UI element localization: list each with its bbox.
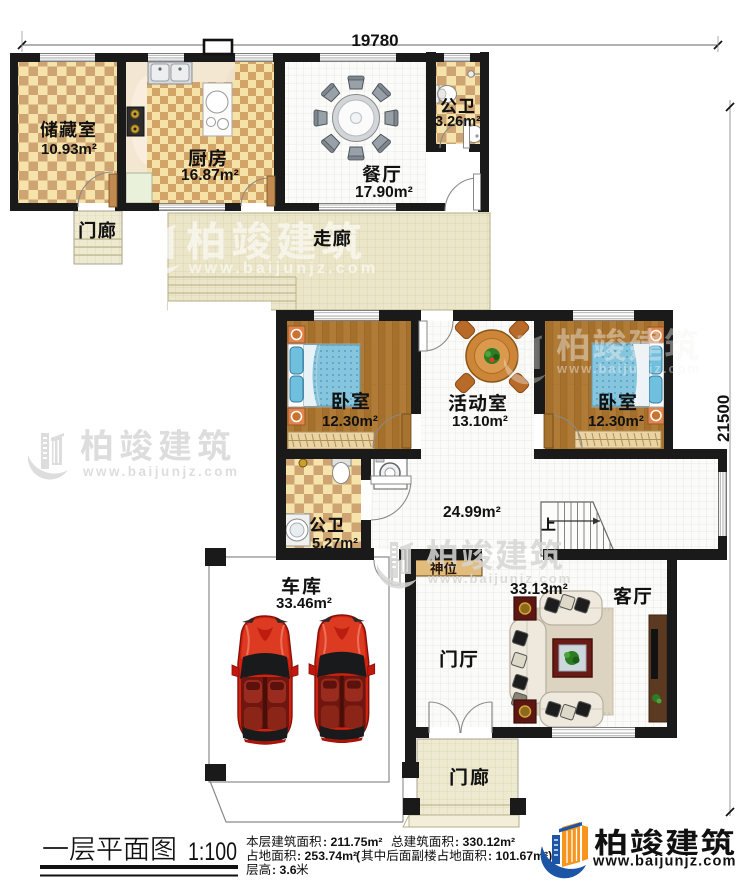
svg-text:1:100: 1:100 (188, 838, 237, 866)
svg-text:: 211.75m²: : 211.75m² (323, 835, 382, 849)
svg-text:: 3.6: : 3.6 (272, 863, 297, 877)
svg-text:21500: 21500 (714, 395, 733, 442)
svg-text:3.26m²: 3.26m² (435, 114, 481, 130)
svg-text:: 330.12m²: : 330.12m² (455, 835, 515, 849)
svg-text:16.87m²: 16.87m² (181, 167, 239, 184)
svg-text:33.13m²: 33.13m² (510, 581, 568, 598)
svg-text:24.99m²: 24.99m² (443, 504, 501, 521)
svg-text:17.90m²: 17.90m² (355, 184, 413, 201)
svg-text:33.46m²: 33.46m² (276, 595, 332, 612)
svg-text:19780: 19780 (351, 31, 398, 50)
svg-text:www.baijunjz.com: www.baijunjz.com (556, 361, 701, 376)
svg-text:10.93m²: 10.93m² (41, 141, 97, 158)
svg-text:13.10m²: 13.10m² (452, 413, 508, 430)
svg-text:www.baijunjz.com: www.baijunjz.com (82, 464, 240, 479)
svg-text:www.baijunjz.com: www.baijunjz.com (188, 260, 378, 277)
svg-text:: 253.74m²: : 253.74m² (297, 849, 357, 863)
svg-text:5.27m²: 5.27m² (312, 536, 358, 552)
svg-text:www.baijunjz.com: www.baijunjz.com (592, 854, 737, 870)
svg-text:12.30m²: 12.30m² (322, 413, 378, 430)
svg-text:12.30m²: 12.30m² (588, 413, 644, 430)
